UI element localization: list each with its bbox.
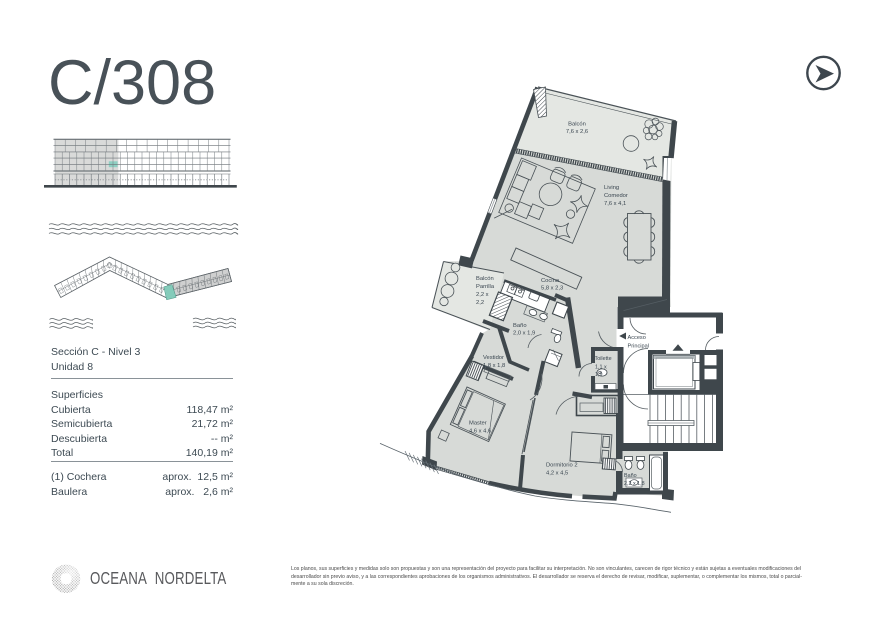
svg-text:7,6 x 2,6: 7,6 x 2,6 — [566, 129, 588, 135]
svg-text:Cocina: Cocina — [541, 278, 560, 284]
svg-text:Balcón: Balcón — [568, 122, 586, 128]
svg-text:Principal: Principal — [628, 344, 649, 350]
svg-text:5,8 x 2,3: 5,8 x 2,3 — [541, 286, 563, 292]
svg-text:Baño: Baño — [513, 323, 527, 329]
svg-text:Toilette: Toilette — [595, 356, 612, 362]
svg-text:1,9: 1,9 — [595, 372, 603, 378]
svg-text:Acceso: Acceso — [628, 335, 646, 341]
svg-text:Living: Living — [604, 185, 619, 191]
svg-text:Parrilla: Parrilla — [476, 284, 495, 290]
svg-text:Balcón: Balcón — [476, 276, 494, 282]
svg-text:Vestidor: Vestidor — [483, 355, 504, 361]
svg-text:4,2 x 4,5: 4,2 x 4,5 — [546, 471, 568, 477]
svg-text:1,1 x: 1,1 x — [595, 365, 607, 371]
svg-text:Dormitorio 2: Dormitorio 2 — [546, 463, 578, 469]
svg-text:Master: Master — [469, 421, 487, 427]
svg-text:2,0 x 1,9: 2,0 x 1,9 — [513, 331, 535, 337]
svg-text:7,6 x 4,1: 7,6 x 4,1 — [604, 201, 626, 207]
svg-text:Baño: Baño — [624, 473, 637, 479]
svg-text:Comedor: Comedor — [604, 193, 628, 199]
svg-text:2,2 x: 2,2 x — [476, 292, 489, 298]
svg-text:2,2 x 1,8: 2,2 x 1,8 — [624, 481, 645, 487]
svg-text:2,2: 2,2 — [476, 300, 484, 306]
svg-text:1,8 x 1,8: 1,8 x 1,8 — [483, 363, 505, 369]
svg-text:4,6 x 4,6: 4,6 x 4,6 — [469, 429, 491, 435]
